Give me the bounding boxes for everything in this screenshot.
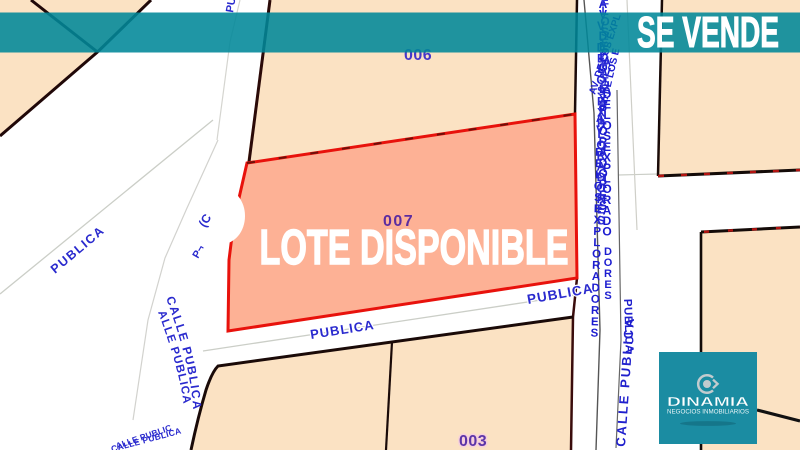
svg-text:PUBLICA: PUBLICA [621,299,635,354]
svg-text:LOTE DISPONIBLE: LOTE DISPONIBLE [260,221,569,275]
svg-text:DORES: DORES [604,246,613,302]
svg-text:NEGOCIOS INMOBILIARIOS: NEGOCIOS INMOBILIARIOS [667,409,749,416]
svg-text:DINAMIA: DINAMIA [667,395,749,409]
svg-text:003: 003 [459,433,487,450]
svg-text:SE VENDE: SE VENDE [637,8,779,57]
